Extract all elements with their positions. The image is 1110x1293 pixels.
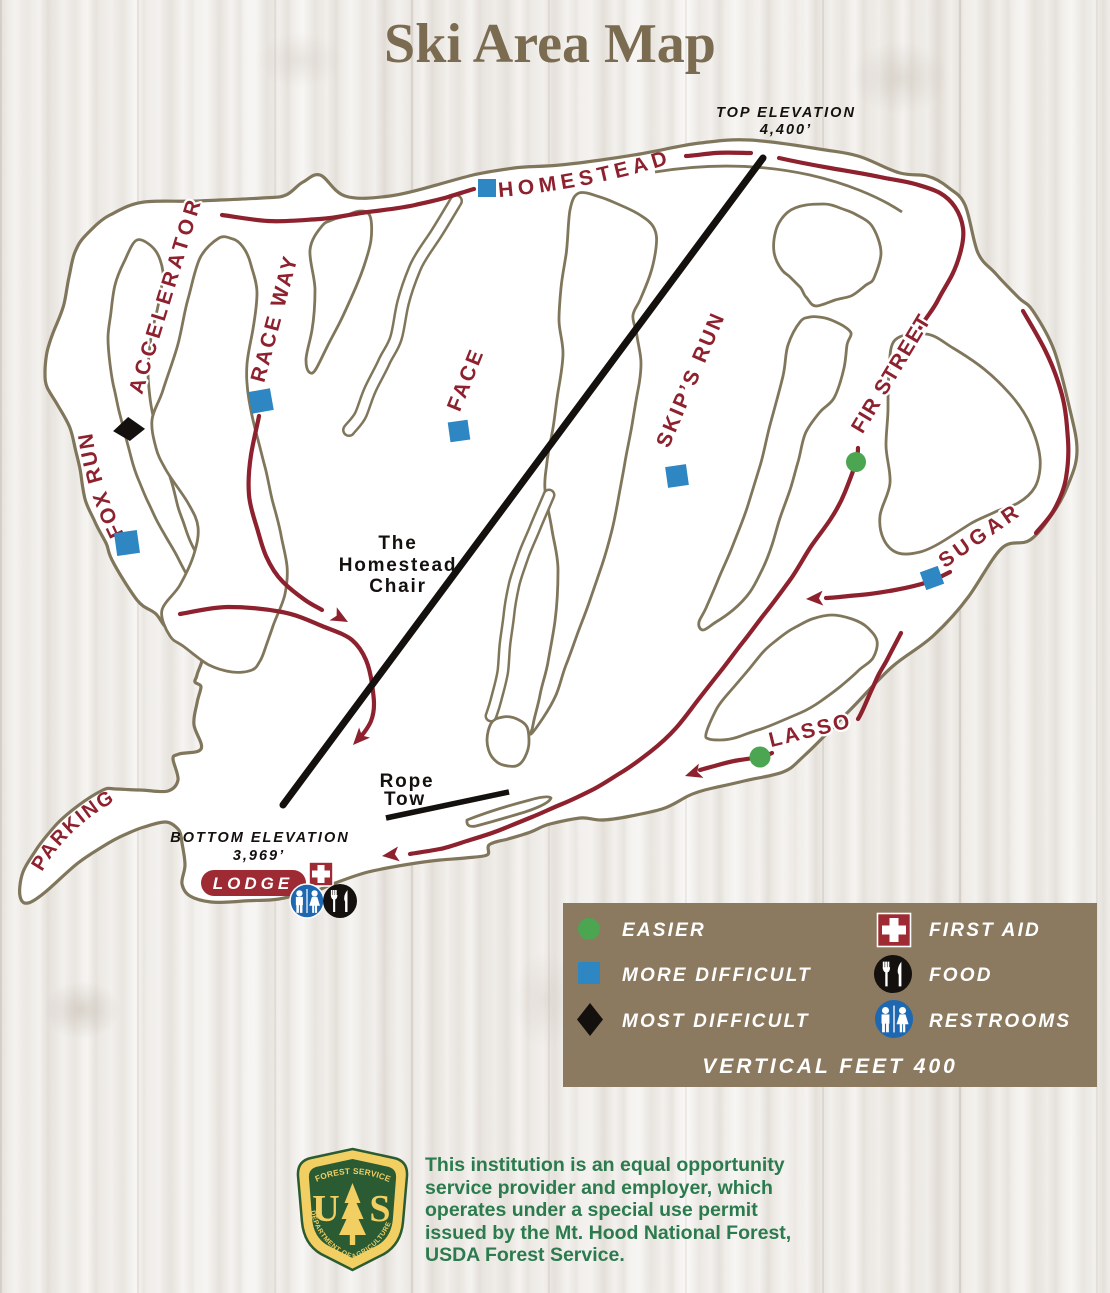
svg-text:MOST DIFFICULT: MOST DIFFICULT [622, 1011, 810, 1032]
svg-text:Homestead: Homestead [339, 555, 458, 576]
svg-text:operates under a special use p: operates under a special use permit [425, 1199, 758, 1221]
svg-text:RESTROOMS: RESTROOMS [929, 1011, 1071, 1032]
svg-text:Ski Area Map: Ski Area Map [384, 13, 716, 75]
svg-text:BOTTOM ELEVATION: BOTTOM ELEVATION [170, 830, 349, 846]
svg-text:FIRST AID: FIRST AID [929, 920, 1041, 941]
svg-text:4,400’: 4,400’ [759, 122, 812, 138]
svg-text:TOP ELEVATION: TOP ELEVATION [716, 105, 856, 121]
svg-text:LODGE: LODGE [213, 874, 293, 893]
svg-text:USDA Forest Service.: USDA Forest Service. [425, 1244, 625, 1266]
svg-text:service provider and employer,: service provider and employer, which [425, 1177, 773, 1199]
svg-text:Tow: Tow [384, 789, 426, 810]
svg-text:MORE DIFFICULT: MORE DIFFICULT [622, 965, 812, 986]
svg-text:EASIER: EASIER [622, 920, 706, 941]
svg-text:FOOD: FOOD [929, 965, 993, 986]
svg-text:VERTICAL FEET 400: VERTICAL FEET 400 [702, 1055, 958, 1078]
svg-text:3,969’: 3,969’ [233, 848, 285, 864]
svg-text:The: The [378, 533, 417, 554]
svg-text:Chair: Chair [369, 576, 427, 597]
svg-text:This institution is an equal o: This institution is an equal opportunity [425, 1154, 785, 1176]
svg-text:issued by the Mt. Hood Nationa: issued by the Mt. Hood National Forest, [425, 1222, 791, 1244]
